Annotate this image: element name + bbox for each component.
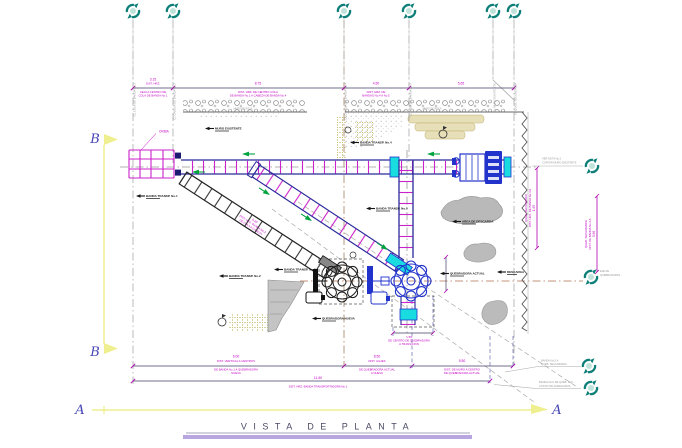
svg-text:QUEBRADORA ACTUAL: QUEBRADORA ACTUAL [450, 272, 485, 276]
criba-label: CRIBA [159, 129, 170, 133]
dim-transition: 1.50 DE CENTRO DE QUEBRADORA A TRANSICIO… [388, 335, 430, 346]
dim-label: DIST. A EJES [369, 359, 386, 363]
svg-text:QUEBRADORA NUEVA: QUEBRADORA NUEVA [322, 317, 356, 321]
svg-text:AREA DE DESCARGA: AREA DE DESCARGA [462, 220, 494, 224]
axis-label: CL MURO EXISTENTE [492, 83, 496, 112]
dim-value: 4.50 [373, 82, 380, 86]
tag: DESCARGA [497, 270, 525, 275]
svg-text:BANDA TRANSP. No.5: BANDA TRANSP. No.5 [376, 207, 408, 211]
svg-text:EJE DE: EJE DE [600, 269, 609, 273]
dim-right-2: 3.96 DIST. DE BANDA No.4 A QUEB. SECUNDA… [584, 218, 596, 249]
axis-label: CL QUEB. SECUNDARIA [513, 83, 517, 115]
criba-leader [141, 134, 156, 151]
dim-value: 3.96 [592, 231, 596, 237]
cad-plan-view: B B A A [0, 0, 682, 448]
conveyor-2-existing [179, 172, 335, 280]
svg-text:BANDA TRANSP. No.4: BANDA TRANSP. No.4 [360, 141, 392, 145]
rotation-marker-icon [508, 3, 520, 19]
feeder-truck [452, 151, 502, 184]
tag: BANDA TRANSP. No.1 [136, 194, 178, 199]
dim-label: DIST. VERTICAL A CENTROS [217, 359, 255, 363]
dim-label: BANDAS No.4 A No.5 [362, 93, 390, 97]
svg-text:MURO EXISTENTE: MURO EXISTENTE [215, 127, 242, 131]
rotation-marker-icon [487, 3, 499, 19]
rotation-marker-icon [585, 269, 597, 285]
rotation-marker-icon [167, 3, 179, 19]
tag: BANDA TRANSP. No.5 [366, 207, 408, 212]
dim-right-1: 1.95 DIST. HRZ. DE BANDA No.4 A QUEB. SE… [524, 189, 536, 227]
belt-head-chute [504, 157, 511, 177]
svg-text:BANDA No.6 DE QUEB. SEC.: BANDA No.6 DE QUEB. SEC. [539, 380, 574, 384]
section-label-a-right: A [551, 403, 561, 418]
axis-label: CL CABEZA DE BANDA No.4 [343, 83, 347, 120]
svg-text:DESCARGA: DESCARGA [507, 270, 525, 274]
belt-junction-chute [390, 157, 399, 177]
dim-label: NUEVA [231, 371, 241, 375]
tag: MURO EXISTENTE [205, 127, 242, 132]
tag: BANDA TRANSP. No.3 [274, 268, 316, 273]
criba-platform [129, 150, 174, 178]
dim-label: QUEB. SECUNDARIA [524, 194, 528, 222]
dim-label: COLA DE BANDA No.1 [138, 93, 168, 97]
axis-label: CL COLA DE BANDA No.1 [132, 83, 136, 117]
dim-label: DE BANDA No.1 A CABEZA DE BANDA No.4 [230, 93, 287, 97]
svg-text:CORTAR MURO EXISTENTE: CORTAR MURO EXISTENTE [542, 160, 577, 164]
title-underline-bar [183, 435, 472, 439]
dim-value: 5.65 [458, 82, 465, 86]
section-line-bb: B B [89, 132, 118, 360]
platform-bracket [175, 153, 181, 159]
dim-labels-top: 3.15 DIST. HRZ. CEJA A CENTRO DE COLA DE… [138, 77, 464, 97]
dim-label: A NUEVA [371, 371, 383, 375]
svg-text:VER NOTA No.2: VER NOTA No.2 [542, 157, 562, 161]
transition-belt [400, 297, 417, 325]
dim-value: 5.50 [459, 359, 466, 363]
section-label-b-top: B [89, 132, 100, 147]
dim-value: 11.60 [314, 376, 322, 380]
svg-text:MURO DE ROCA: MURO DE ROCA [423, 108, 442, 111]
axis-label: CL CABEZA DE BANDA No.2 [172, 83, 176, 120]
svg-text:BANDA TRANSP. No.1: BANDA TRANSP. No.1 [146, 194, 178, 198]
grid-lines [120, 20, 583, 384]
dim-label: QUEB. SECUNDARIA [584, 220, 588, 248]
drawing-title: VISTA DE PLANTA [241, 422, 415, 432]
svg-text:MURO DE ROCA: MURO DE ROCA [234, 108, 253, 111]
section-label-b-bottom: B [89, 345, 100, 360]
svg-text:QUEB. SECUNDARIA: QUEB. SECUNDARIA [541, 362, 567, 366]
dim-value: 8.75 [255, 82, 262, 86]
svg-text:BANDA TRANSP. No.3: BANDA TRANSP. No.3 [284, 268, 316, 272]
dim-value: 1.95 [532, 205, 536, 211]
tag: BANDA TRANSP. No.2 [219, 274, 261, 279]
dim-label: DIST. DE BANDA No.4 A [588, 218, 592, 249]
conveyor-3 [247, 162, 404, 273]
platform-bracket [175, 170, 181, 176]
dim-label: A TRANSICION [399, 342, 419, 346]
dim-label: DIST. HRZ. [146, 82, 160, 86]
svg-text:BANDA No.5 A: BANDA No.5 A [541, 358, 559, 362]
svg-text:QUEBRADORAS: QUEBRADORAS [600, 273, 620, 277]
tag: QUEBRADORA ACTUAL [440, 272, 485, 277]
title-block: VISTA DE PLANTA [183, 422, 472, 440]
section-line-aa: A A [74, 403, 561, 418]
dim-labels-bottom: 6.00 DIST. VERTICAL A CENTROS DE BANDA N… [214, 355, 481, 389]
rotation-marker-icon [127, 3, 139, 19]
dim-label: DIST. HRZ. DE BANDA No.4 A [528, 189, 532, 227]
rotation-marker-icon [585, 380, 597, 396]
rotation-marker-icon [403, 3, 415, 19]
svg-text:BANDA TRANSP. No.2: BANDA TRANSP. No.2 [229, 274, 261, 278]
rotation-marker-icon [338, 3, 350, 19]
axis-label: CL COLA DE BANDA No.5 [408, 83, 412, 117]
rotation-marker-icon [586, 158, 598, 174]
dim-label: DE QUEBRADORA ACTUAL [444, 371, 481, 375]
dim-label: DIST. HRZ. BANDA TRANSPORTADORA No.1 [289, 385, 348, 389]
section-label-a-left: A [74, 403, 84, 418]
rotation-marker-icon [583, 358, 595, 374]
tag: QUEBRADORA NUEVA [312, 317, 356, 322]
svg-text:A PATIO DE AGREGADOS: A PATIO DE AGREGADOS [539, 384, 571, 388]
